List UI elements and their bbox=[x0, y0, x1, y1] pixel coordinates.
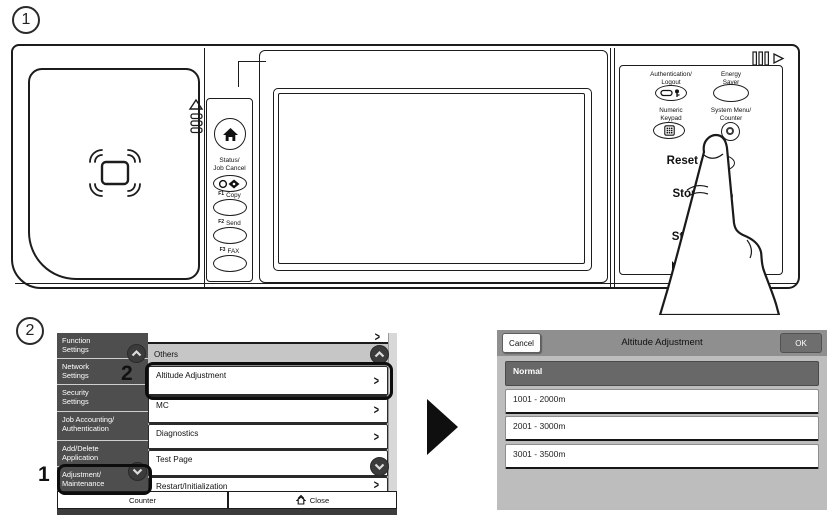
close-button[interactable]: Close bbox=[228, 491, 397, 509]
home-button[interactable] bbox=[214, 118, 246, 150]
sidebar-scroll-up-icon[interactable] bbox=[127, 344, 146, 363]
authentication-logout-button[interactable] bbox=[655, 85, 687, 101]
callout-number-1: 1 bbox=[38, 463, 50, 487]
f3-fax-button[interactable] bbox=[213, 255, 247, 272]
touchscreen-frame bbox=[273, 88, 592, 271]
energy-saver-button[interactable] bbox=[713, 84, 749, 102]
f3-key-name: FAX bbox=[227, 248, 239, 255]
attention-and-paper-indicator-icons bbox=[188, 98, 205, 138]
callout-number-2: 2 bbox=[121, 362, 133, 386]
card-reader-area bbox=[28, 68, 200, 280]
status-job-cancel-label: Status/ Job Cancel bbox=[207, 157, 252, 173]
chevron-right-icon: > bbox=[374, 477, 379, 491]
option-3001-3500m[interactable]: 3001 - 3500m bbox=[505, 444, 819, 469]
dialog-title: Altitude Adjustment bbox=[497, 337, 827, 348]
f3-fax-label: F3FAX bbox=[207, 247, 252, 255]
option-2001-3000m[interactable]: 2001 - 3000m bbox=[505, 416, 819, 441]
section-divider bbox=[610, 48, 611, 287]
f1-key-code: F1 bbox=[218, 191, 224, 197]
chevron-right-icon: > bbox=[375, 333, 380, 344]
step-1-marker: 1 bbox=[12, 6, 40, 34]
menu-list: > Others Altitude Adjustment > MC > Diag… bbox=[148, 333, 388, 491]
dialog-header: Cancel Altitude Adjustment OK bbox=[497, 330, 827, 356]
step-1-number: 1 bbox=[22, 11, 31, 29]
menu-row-test-page[interactable]: Test Page bbox=[148, 450, 388, 477]
close-icon bbox=[296, 495, 306, 505]
manual-figure: 1 bbox=[0, 0, 831, 519]
option-1001-2000m[interactable]: 1001 - 2000m bbox=[505, 389, 819, 414]
callout-box-2 bbox=[145, 362, 393, 400]
step-arrow bbox=[427, 399, 458, 455]
function-key-strip: Status/ Job Cancel F1Copy F2Send F3FAX bbox=[206, 98, 253, 282]
ok-button-label: OK bbox=[795, 339, 807, 348]
screen-bottom-strip bbox=[57, 509, 397, 515]
altitude-adjustment-screen: Cancel Altitude Adjustment OK Normal 100… bbox=[497, 330, 827, 510]
section-divider bbox=[614, 48, 615, 287]
list-scroll-down-icon[interactable] bbox=[370, 457, 389, 476]
menu-row-diagnostics[interactable]: Diagnostics > bbox=[148, 424, 388, 450]
status-job-cancel-icon bbox=[218, 179, 242, 189]
f2-send-label: F2Send bbox=[207, 219, 252, 227]
status-job-cancel-button[interactable] bbox=[213, 175, 247, 192]
f3-key-code: F3 bbox=[220, 247, 226, 253]
f2-send-button[interactable] bbox=[213, 227, 247, 244]
sidebar-item-job-accounting[interactable]: Job Accounting/ Authentication bbox=[57, 412, 148, 441]
chevron-right-icon: > bbox=[374, 402, 379, 416]
menu-row-mc[interactable]: MC > bbox=[148, 396, 388, 424]
option-normal[interactable]: Normal bbox=[505, 361, 819, 386]
f1-copy-label: F1Copy bbox=[207, 191, 252, 199]
f2-key-name: Send bbox=[226, 220, 241, 227]
list-scrollbar[interactable] bbox=[388, 333, 397, 491]
menu-row-partial[interactable]: > bbox=[148, 333, 388, 344]
ok-button[interactable]: OK bbox=[780, 333, 822, 353]
menu-section-header-label: Others bbox=[154, 350, 178, 359]
touchscreen-display[interactable] bbox=[278, 93, 585, 264]
pointing-hand bbox=[640, 128, 815, 315]
callout-box-1 bbox=[57, 464, 152, 495]
lid-hinge-line bbox=[238, 61, 239, 87]
counter-button-label: Counter bbox=[129, 496, 156, 505]
menu-row-restart-initialization[interactable]: Restart/Initialization > bbox=[148, 477, 388, 491]
numeric-keypad-label: Numeric Keypad bbox=[634, 107, 708, 123]
authentication-logout-icon bbox=[660, 88, 682, 98]
step-2-number: 2 bbox=[26, 322, 35, 340]
close-button-label: Close bbox=[310, 496, 329, 505]
f1-key-name: Copy bbox=[226, 192, 241, 199]
touchscreen-bezel bbox=[259, 50, 608, 283]
chevron-right-icon: > bbox=[374, 429, 379, 443]
step-2-marker: 2 bbox=[16, 317, 44, 345]
system-menu-counter-label: System Menu/ Counter bbox=[698, 107, 764, 123]
home-icon bbox=[222, 127, 239, 142]
f1-copy-button[interactable] bbox=[213, 199, 247, 216]
f2-key-code: F2 bbox=[218, 219, 224, 225]
nfc-card-icon bbox=[85, 146, 145, 202]
sidebar-item-security-settings[interactable]: Security Settings bbox=[57, 385, 148, 412]
